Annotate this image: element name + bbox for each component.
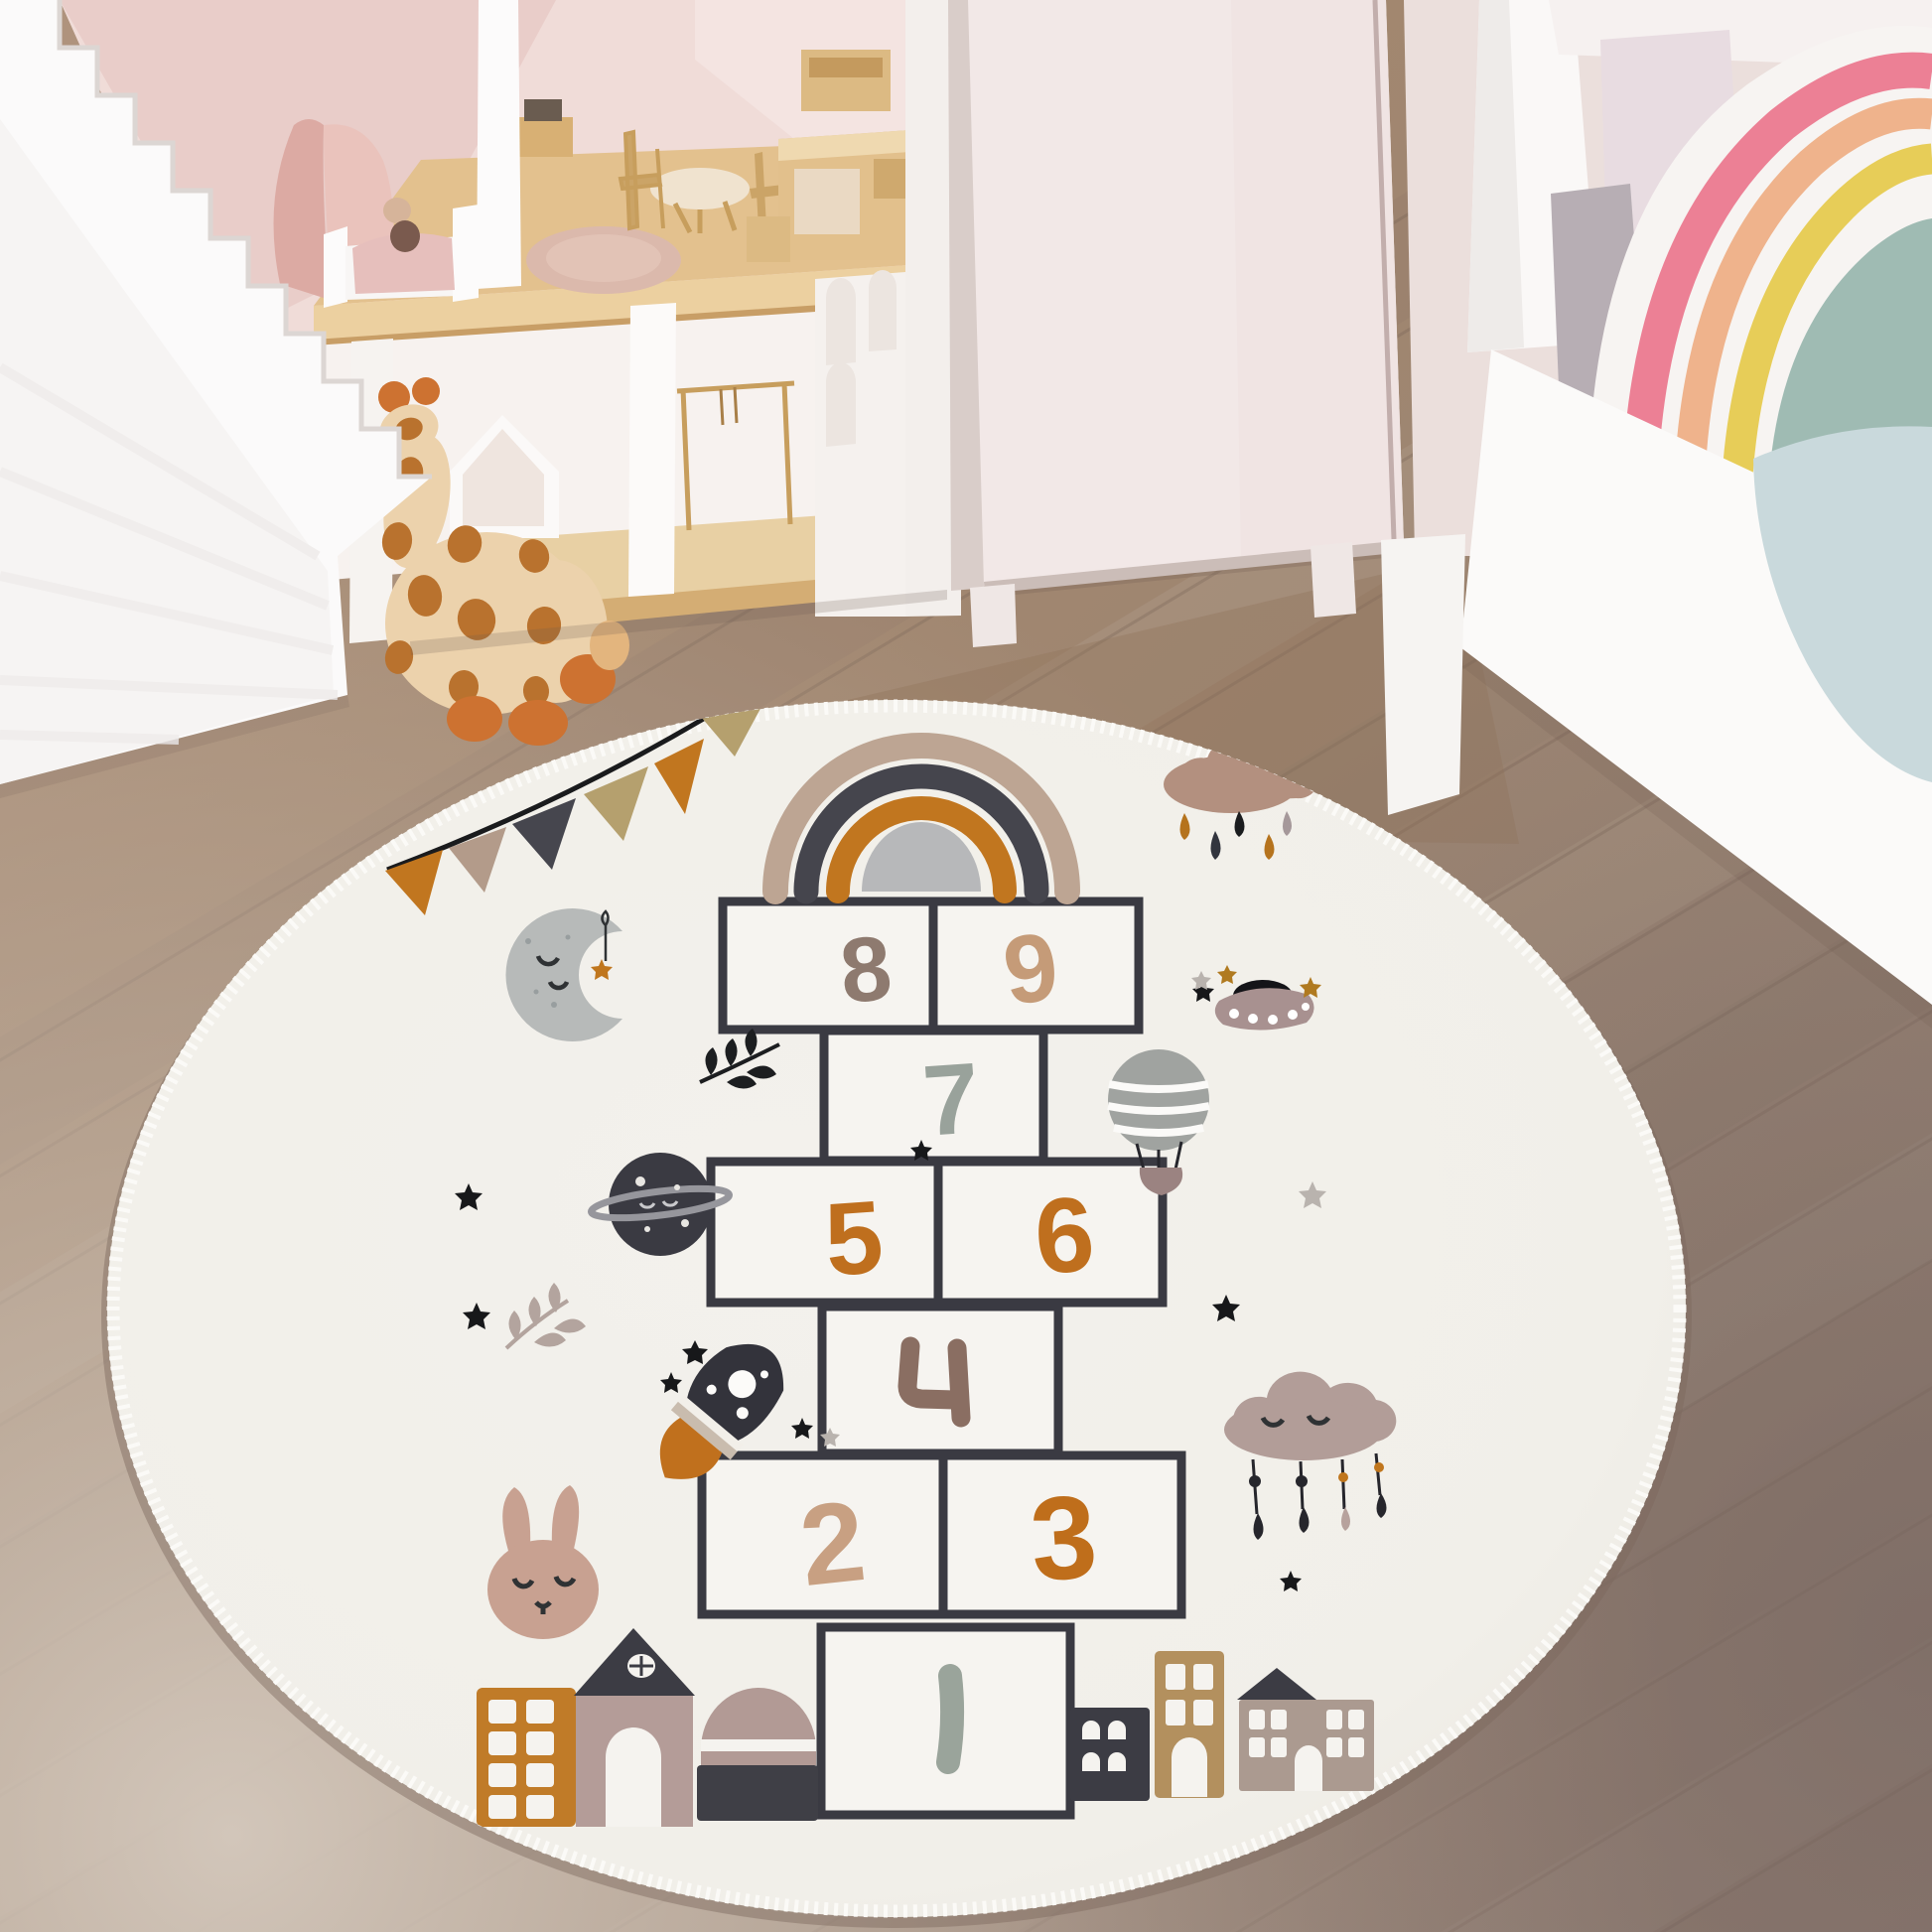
svg-text:6: 6 <box>1031 1173 1098 1297</box>
svg-text:2: 2 <box>794 1477 871 1610</box>
svg-text:5: 5 <box>821 1179 887 1299</box>
svg-text:3: 3 <box>1027 1470 1101 1606</box>
svg-text:7: 7 <box>919 1042 983 1158</box>
svg-text:8: 8 <box>836 917 896 1023</box>
